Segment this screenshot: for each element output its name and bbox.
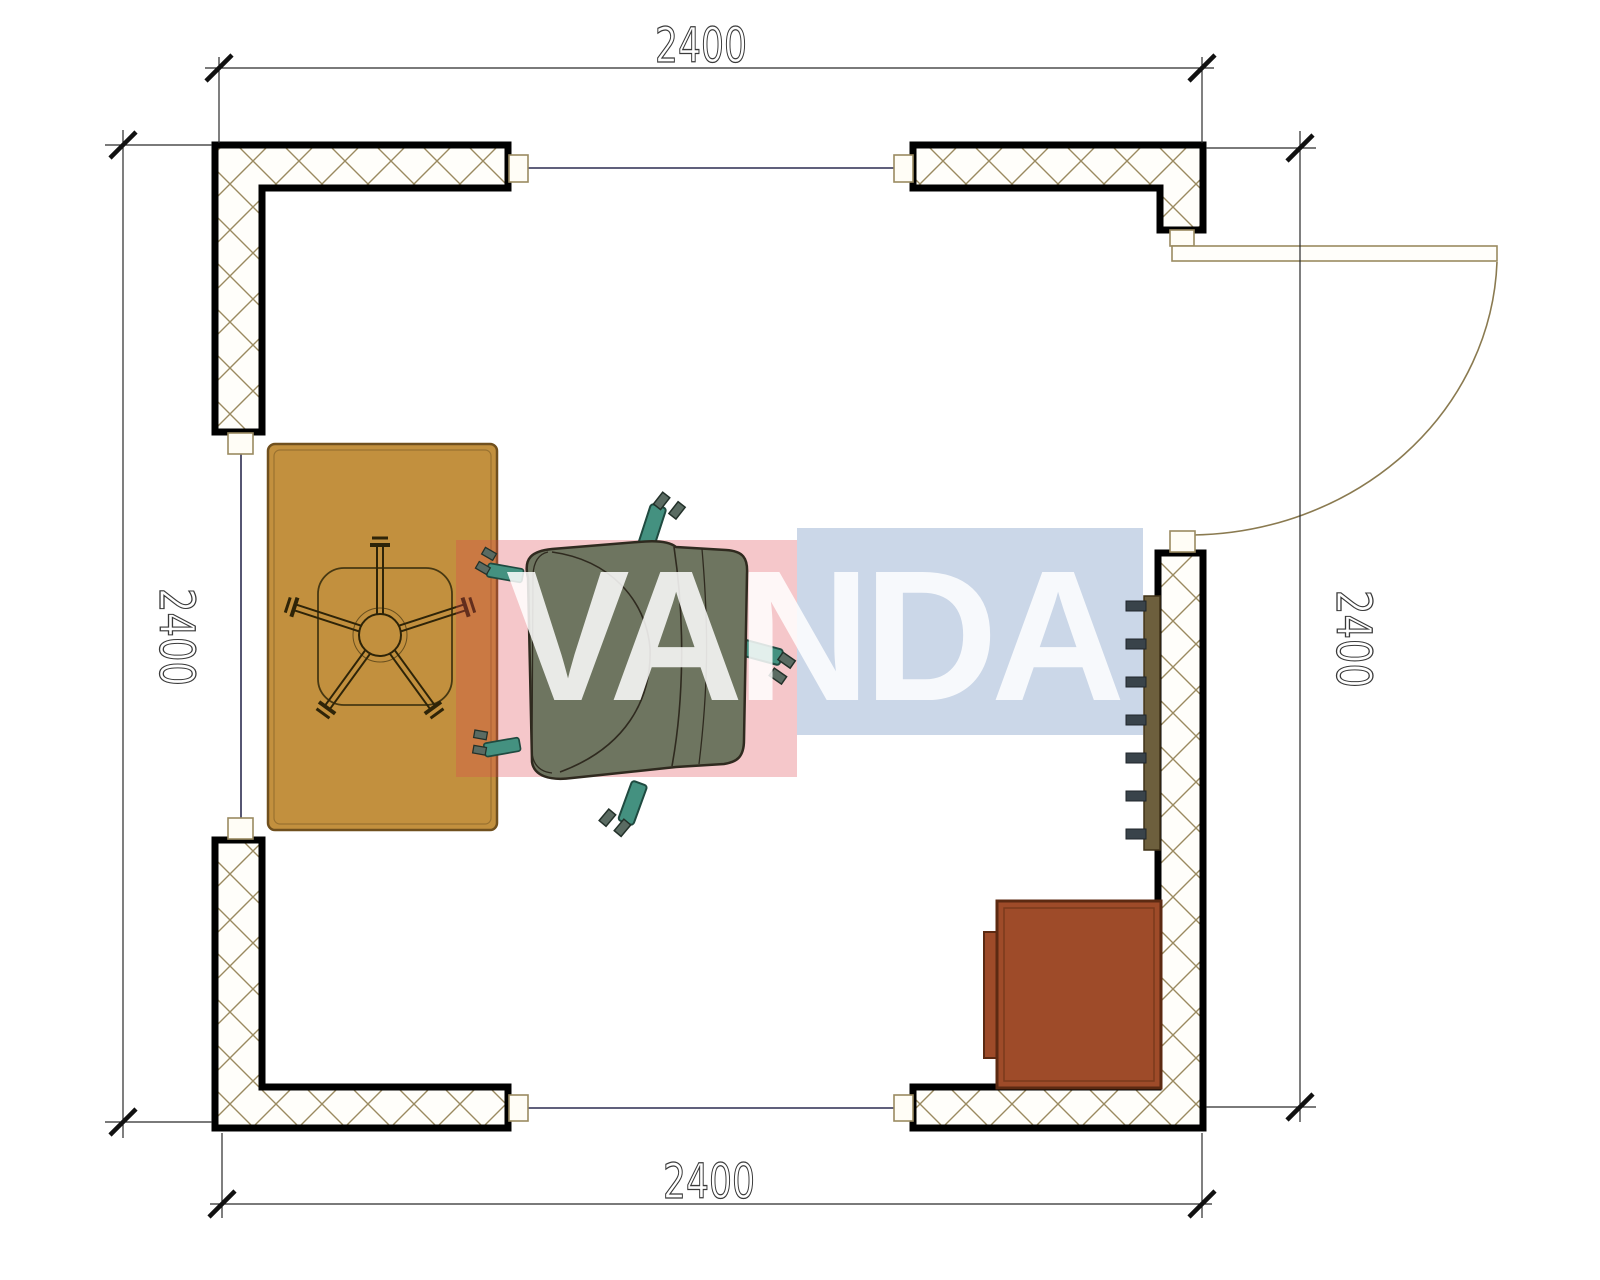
dimension-right: 2400: [1206, 131, 1381, 1122]
wall-bottom-left: [215, 840, 508, 1128]
window-marker-bottom-right: [894, 1095, 913, 1121]
dimension-bottom: 2400: [209, 1133, 1215, 1218]
window-marker-bottom-left: [509, 1095, 528, 1121]
wall-top-right: [913, 145, 1203, 230]
door: [1170, 230, 1497, 552]
floor-plan-canvas: 2400 2400 2400 2400: [0, 0, 1600, 1280]
dimension-top: 2400: [205, 18, 1215, 143]
watermark-text: VANDA: [506, 533, 1121, 740]
floor-plan-drawing: 2400 2400 2400 2400: [0, 0, 1600, 1280]
window-marker-left-top: [228, 433, 253, 454]
door-leaf: [1172, 246, 1497, 261]
dimension-label-top: 2400: [655, 18, 747, 74]
window-marker-left-bottom: [228, 818, 253, 839]
cabinet-body: [997, 901, 1161, 1088]
window-marker-top-left: [509, 155, 528, 182]
door-frame-top: [1170, 230, 1194, 246]
door-swing-arc: [1193, 262, 1497, 535]
door-frame-hinge: [1170, 531, 1195, 552]
dimension-left: 2400: [105, 130, 212, 1138]
chair-leg-bottom: [597, 774, 648, 838]
dimension-label-bottom: 2400: [663, 1154, 755, 1210]
dimension-label-right: 2400: [1325, 590, 1381, 688]
cabinet: [984, 901, 1161, 1088]
window-marker-top-right: [894, 155, 913, 182]
dimension-label-left: 2400: [148, 588, 204, 686]
wall-top-left: [215, 145, 508, 432]
